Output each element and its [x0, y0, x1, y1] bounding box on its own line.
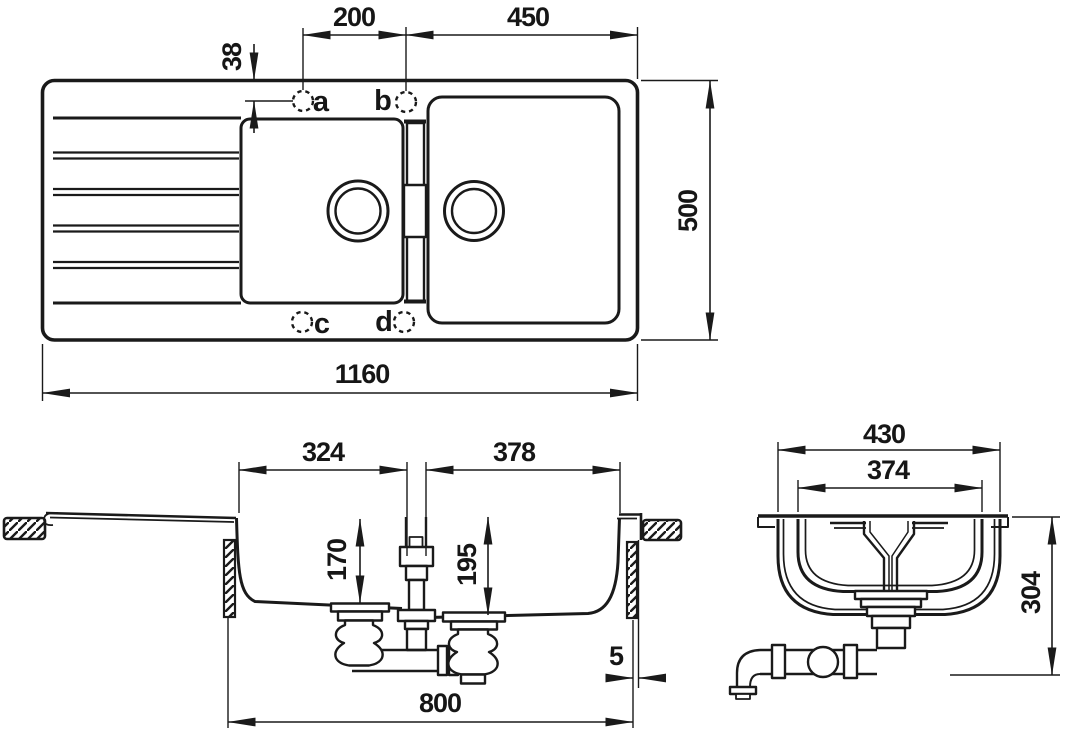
dim-170-label: 170	[322, 539, 352, 581]
dim-bowl-inner-width: 374	[798, 455, 982, 512]
countertop-right-hatch	[643, 520, 681, 540]
dim-right-bowl-to-edge: 450	[406, 2, 638, 79]
dim-left-bowl-top-width: 324	[239, 437, 407, 556]
dim-800-label: 800	[419, 688, 461, 718]
dim-378-label: 378	[493, 437, 536, 467]
dim-500-label: 500	[673, 190, 703, 232]
end-rim-profile	[758, 516, 1008, 527]
middle-bowl-drain	[328, 181, 388, 241]
dim-cutout-length: 800	[228, 688, 633, 722]
dim-edge-gap: 5	[606, 641, 666, 678]
overflow-standpipe	[864, 521, 914, 591]
drawing-canvas: a b c d 200 450 38 500	[0, 0, 1065, 730]
left-bowl-profile	[237, 518, 403, 609]
end-section-view: 430 374 304	[730, 419, 1060, 699]
dim-left-bowl-depth: 170	[322, 519, 360, 603]
cabinet-panel-left-hatch	[224, 540, 235, 617]
dim-overall-width: 500	[641, 81, 718, 341]
dim-5-label: 5	[609, 641, 624, 671]
waste-pipe-end	[730, 645, 877, 699]
tap-hole-c	[292, 312, 312, 332]
dim-200-label: 200	[333, 2, 375, 32]
dim-1160-label: 1160	[335, 359, 390, 389]
dim-38-label: 38	[217, 42, 247, 71]
dim-195-label: 195	[452, 543, 482, 586]
dim-374-label: 374	[867, 455, 910, 485]
tap-hole-label-d: d	[375, 306, 393, 338]
top-view: a b c d 200 450 38 500	[43, 2, 719, 401]
center-waste-fitting	[398, 517, 435, 650]
middle-bowl-outline	[241, 119, 403, 303]
bowl-inner-wall-second-line	[806, 519, 975, 586]
dim-304-label: 304	[1016, 571, 1046, 614]
bowl-divider	[404, 122, 426, 302]
dim-overall-height: 304	[950, 517, 1060, 675]
dim-hole-spacing: 200	[303, 2, 406, 91]
tap-hole-label-c: c	[314, 308, 330, 340]
side-section-view: 324 378 170 195 5 800	[4, 437, 681, 728]
dim-overall-length: 1160	[43, 344, 638, 401]
drainboard-grooves	[53, 118, 241, 303]
dim-450-label: 450	[507, 2, 549, 32]
drain-strainer-stack	[855, 591, 927, 648]
left-bowl-trap	[331, 604, 389, 666]
dim-right-bowl-top-width: 378	[426, 437, 620, 556]
tap-hole-d	[394, 312, 414, 332]
tap-hole-a	[293, 91, 313, 111]
tap-hole-b	[396, 92, 416, 112]
cabinet-panel-right-hatch	[627, 542, 637, 618]
right-bowl-drain	[445, 182, 504, 241]
countertop-left-hatch	[4, 518, 45, 539]
right-bowl-outline	[428, 97, 619, 323]
technical-drawing-sink: a b c d 200 450 38 500	[0, 0, 1065, 730]
tap-hole-label-b: b	[374, 85, 392, 117]
dim-right-bowl-depth: 195	[452, 517, 488, 615]
dim-324-label: 324	[302, 437, 345, 467]
dim-430-label: 430	[863, 419, 905, 449]
tap-hole-label-a: a	[313, 86, 330, 118]
sink-deck-profile	[44, 513, 641, 540]
